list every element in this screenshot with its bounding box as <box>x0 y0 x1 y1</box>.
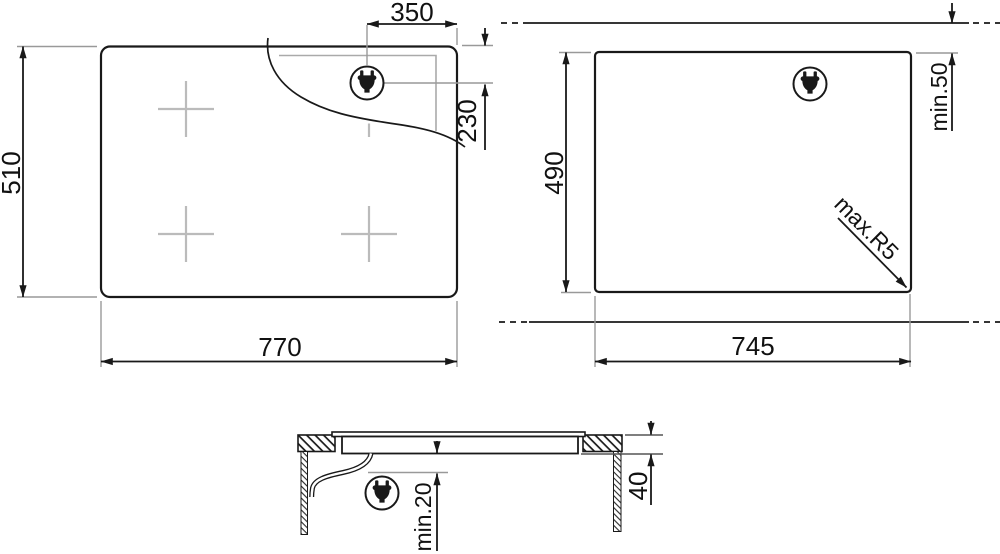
hob-outline <box>101 47 457 298</box>
dim745-label: 745 <box>731 331 774 361</box>
worktop-cutout-view: 490 745 min.50 max.R5 <box>499 3 1000 367</box>
worktop-section-left <box>298 435 335 452</box>
hob-top-view: 510 770 350 230 <box>0 0 493 367</box>
dim350-label: 350 <box>390 0 433 27</box>
worktop-section-right <box>583 435 622 452</box>
plug-icon <box>351 67 384 100</box>
drawing-svg: 510 770 350 230 <box>0 0 1000 554</box>
dim-min20-label: min.20 <box>410 482 436 551</box>
dim490-label: 490 <box>539 151 569 194</box>
power-cable <box>312 454 371 498</box>
dim230-label: 230 <box>452 99 482 142</box>
dim510-label: 510 <box>0 151 26 194</box>
cabinet-panel-left <box>301 452 308 535</box>
plug-icon <box>794 68 827 101</box>
hob-body <box>342 437 578 454</box>
dim40-label: 40 <box>623 472 653 501</box>
plug-icon <box>366 477 399 510</box>
side-section-view: min.20 40 <box>298 421 663 552</box>
dim-min50-label: min.50 <box>926 62 952 131</box>
cutout-outline <box>595 52 911 292</box>
technical-drawing: 510 770 350 230 <box>0 0 1000 554</box>
dim770-label: 770 <box>258 332 301 362</box>
cabinet-panel-right <box>614 452 622 532</box>
